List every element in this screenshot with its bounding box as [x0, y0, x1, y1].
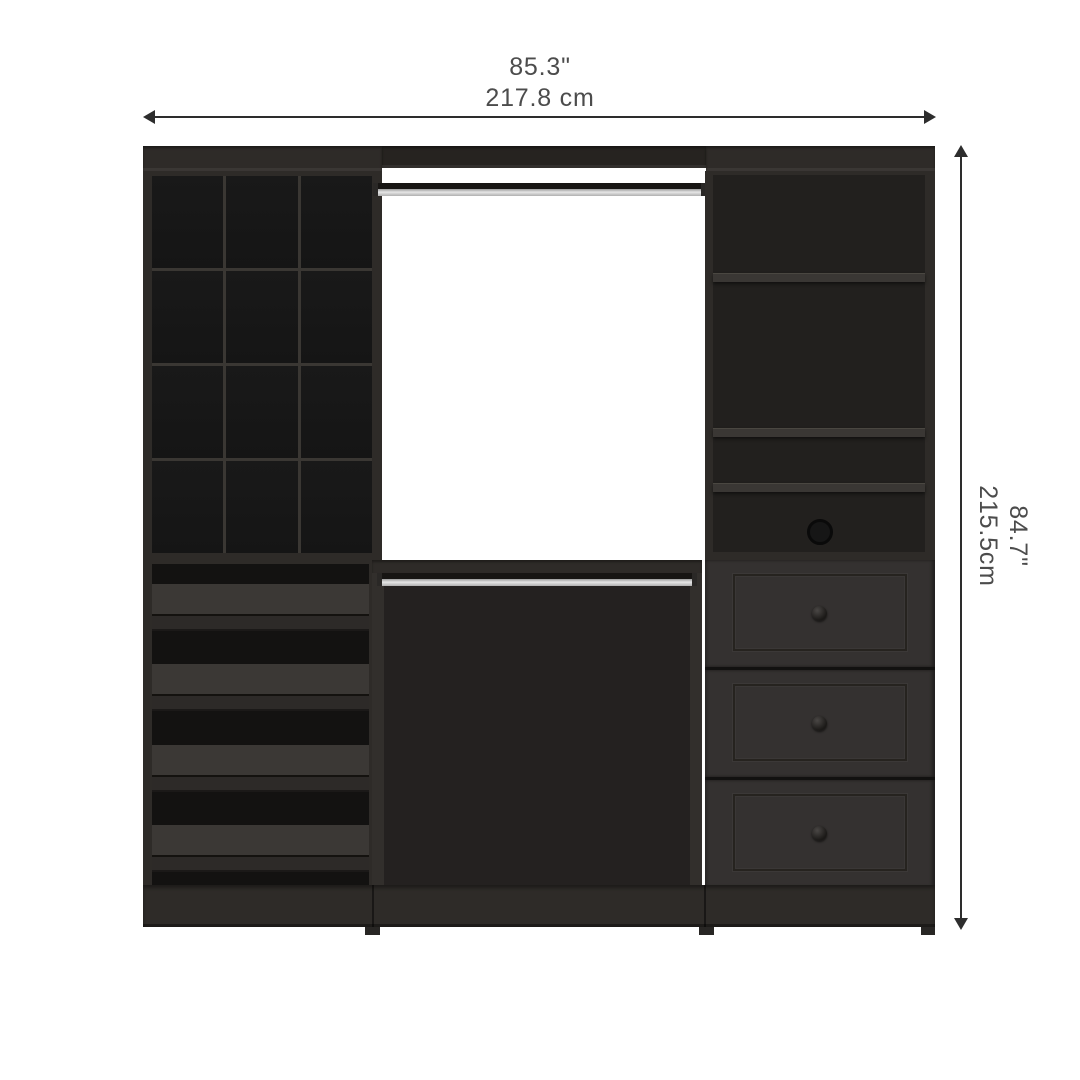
product-dimension-image: 85.3" 217.8 cm 84.7" 215.5cm — [0, 0, 1080, 1080]
arrowhead-right-icon — [924, 110, 936, 124]
height-dimension-line — [960, 151, 962, 923]
cubby-cell — [152, 461, 223, 553]
cubby-cell — [301, 176, 372, 268]
drawer-knob — [812, 716, 827, 731]
grommet-hole — [807, 519, 833, 545]
shoe-shelf — [152, 564, 369, 644]
arrowhead-down-icon — [954, 918, 968, 930]
drawer — [705, 780, 935, 887]
shoe-shelf-rail — [152, 855, 369, 872]
height-inches-text: 84.7" — [1003, 474, 1033, 598]
rod-end-cap — [692, 573, 697, 586]
plinth-seam — [372, 885, 374, 927]
width-dimension-line — [146, 116, 933, 118]
drawer-stack — [705, 560, 935, 887]
height-cm-text: 215.5cm — [973, 474, 1003, 598]
shoe-shelf-surface — [152, 745, 369, 775]
drawer — [705, 560, 935, 667]
right-tower-shelf-unit — [705, 171, 935, 560]
rod-end-cap — [377, 573, 382, 586]
shoe-shelf-stack — [152, 564, 369, 885]
open-shelf — [713, 428, 925, 437]
drawer-knob — [812, 606, 827, 621]
cubby-cell — [152, 176, 223, 268]
rod-end-cap — [373, 183, 378, 196]
cubby-cell — [226, 176, 297, 268]
rod-metal-bar — [376, 189, 703, 196]
width-inches-text: 85.3" — [340, 52, 740, 83]
shoe-shelf — [152, 725, 369, 805]
shoe-shelf-surface — [152, 664, 369, 694]
lower-hanging-rod — [380, 573, 694, 586]
drawer-knob — [812, 826, 827, 841]
shoe-shelf — [152, 644, 369, 724]
cubby-cell — [301, 461, 372, 553]
shoe-shelf-surface — [152, 825, 369, 855]
plinth-base — [143, 885, 935, 927]
shoe-shelf-rail — [152, 694, 369, 711]
height-dimension-label: 84.7" 215.5cm — [971, 474, 1033, 598]
drawer — [705, 670, 935, 777]
middle-lower-top-panel — [372, 560, 702, 573]
leveling-foot — [365, 927, 380, 935]
shoe-shelf — [152, 805, 369, 885]
left-tower-cubby-unit — [143, 171, 382, 557]
width-cm-text: 217.8 cm — [340, 83, 740, 114]
plinth-seam — [704, 885, 706, 927]
middle-lower-module — [372, 560, 702, 885]
shoe-shelf-surface — [152, 584, 369, 614]
arrowhead-left-icon — [143, 110, 155, 124]
cubby-cell — [152, 271, 223, 363]
cubby-cell — [301, 271, 372, 363]
cubby-cell — [226, 461, 297, 553]
shoe-shelf-rail — [152, 775, 369, 792]
cubby-cell — [301, 366, 372, 458]
open-shelf — [713, 273, 925, 282]
leveling-foot — [699, 927, 714, 935]
middle-top-panel — [382, 146, 706, 168]
open-shelf — [713, 483, 925, 492]
right-tower-top-panel — [706, 146, 935, 171]
shoe-shelf-rail — [152, 614, 369, 631]
left-tower-top-panel — [143, 146, 382, 171]
cubby-grid — [152, 176, 372, 553]
cubby-cell — [152, 366, 223, 458]
width-dimension-label: 85.3" 217.8 cm — [340, 52, 740, 114]
arrowhead-up-icon — [954, 145, 968, 157]
rod-metal-bar — [380, 579, 694, 586]
middle-back-panel — [384, 586, 690, 885]
leveling-foot — [921, 927, 935, 935]
upper-hanging-rod — [376, 183, 703, 196]
cubby-cell — [226, 366, 297, 458]
cubby-cell — [226, 271, 297, 363]
shoe-shelf-unit — [143, 557, 382, 885]
wardrobe-closet-organizer — [143, 146, 935, 938]
